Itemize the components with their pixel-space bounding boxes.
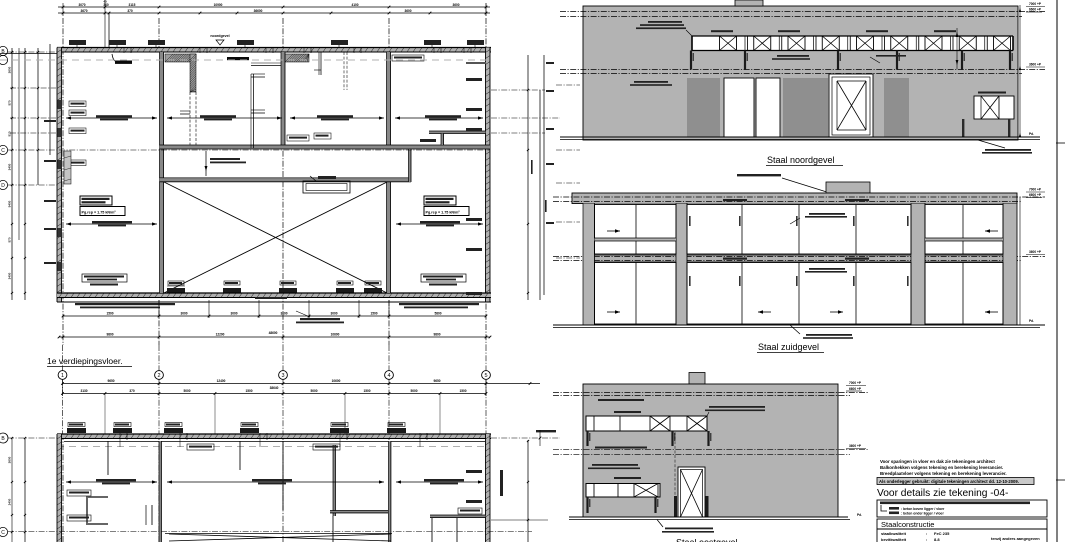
svg-text:FeC 235: FeC 235 bbox=[934, 531, 950, 536]
svg-text:3000: 3000 bbox=[280, 312, 287, 316]
svg-text:10600: 10600 bbox=[331, 333, 340, 337]
svg-text:1: 1 bbox=[61, 373, 64, 379]
svg-text:1500: 1500 bbox=[245, 389, 252, 393]
svg-text:Breedplaatvloer volgens tekeni: Breedplaatvloer volgens tekening en bere… bbox=[880, 471, 1007, 476]
svg-text:5800: 5800 bbox=[434, 312, 441, 316]
svg-text:3130: 3130 bbox=[80, 389, 87, 393]
svg-text:3400: 3400 bbox=[8, 272, 12, 279]
svg-text:3070: 3070 bbox=[78, 3, 85, 7]
svg-text:6600 +P: 6600 +P bbox=[1029, 8, 1042, 12]
svg-text:Pg.rep = 1.75 kN/m²: Pg.rep = 1.75 kN/m² bbox=[426, 210, 461, 214]
svg-text:7000 +P: 7000 +P bbox=[849, 381, 862, 385]
svg-text:: beton onder ligger / vloer: : beton onder ligger / vloer bbox=[901, 512, 944, 516]
svg-text:3000: 3000 bbox=[330, 312, 337, 316]
svg-text:bevitkwaliteit: bevitkwaliteit bbox=[881, 537, 907, 542]
svg-text:Pd.: Pd. bbox=[857, 513, 862, 517]
svg-text:510: 510 bbox=[8, 131, 12, 136]
svg-text:9800: 9800 bbox=[433, 333, 440, 337]
svg-text:Staal zuidgevel: Staal zuidgevel bbox=[758, 342, 819, 352]
svg-text:3670: 3670 bbox=[80, 9, 87, 13]
svg-text:9800: 9800 bbox=[106, 333, 113, 337]
svg-text:1500: 1500 bbox=[459, 389, 466, 393]
svg-text:3600 +P: 3600 +P bbox=[1029, 63, 1042, 67]
svg-text:8.8: 8.8 bbox=[934, 537, 940, 542]
svg-text:570: 570 bbox=[8, 100, 12, 105]
svg-text:360: 360 bbox=[103, 3, 109, 7]
svg-text:10900: 10900 bbox=[214, 3, 223, 7]
svg-text:3115: 3115 bbox=[129, 3, 136, 7]
svg-text:6600 +P: 6600 +P bbox=[1029, 193, 1042, 197]
svg-text:Pg.rep = 1.75 kN/m²: Pg.rep = 1.75 kN/m² bbox=[82, 210, 117, 214]
svg-text:noordgevel: noordgevel bbox=[210, 34, 229, 38]
svg-text:38640: 38640 bbox=[270, 386, 279, 390]
svg-text:Staal noordgevel: Staal noordgevel bbox=[767, 155, 835, 165]
svg-text:5000: 5000 bbox=[183, 389, 190, 393]
svg-text:7000 +P: 7000 +P bbox=[1029, 188, 1042, 192]
svg-text:1500: 1500 bbox=[106, 312, 113, 316]
svg-text:: beton boven ligger / vloer: : beton boven ligger / vloer bbox=[901, 507, 945, 511]
svg-text:Staalconstructie: Staalconstructie bbox=[881, 520, 934, 529]
svg-text:Voor sparingen in vloer en dak: Voor sparingen in vloer en dak zie teken… bbox=[880, 459, 995, 464]
svg-text:1e verdiepingsvloer.: 1e verdiepingsvloer. bbox=[47, 356, 123, 366]
svg-text:2: 2 bbox=[157, 373, 160, 379]
svg-text:5: 5 bbox=[484, 373, 487, 379]
svg-text:36600: 36600 bbox=[254, 9, 263, 13]
svg-text:4: 4 bbox=[387, 373, 390, 379]
svg-text:3600 +P: 3600 +P bbox=[849, 444, 862, 448]
svg-text:3600: 3600 bbox=[404, 9, 411, 13]
svg-text:5400: 5400 bbox=[8, 200, 12, 207]
svg-text:Staal oostgevel: Staal oostgevel bbox=[676, 538, 738, 542]
svg-text:10600: 10600 bbox=[332, 379, 341, 383]
svg-text:Pd.: Pd. bbox=[1029, 132, 1034, 136]
svg-text:9650: 9650 bbox=[433, 379, 440, 383]
svg-text:3: 3 bbox=[281, 373, 284, 379]
svg-text:48600: 48600 bbox=[269, 331, 278, 335]
svg-text:Pd.: Pd. bbox=[1029, 319, 1034, 323]
svg-text:3600: 3600 bbox=[452, 3, 459, 7]
svg-text:1500: 1500 bbox=[370, 312, 377, 316]
svg-text:370: 370 bbox=[129, 389, 135, 393]
svg-text::: : bbox=[926, 531, 927, 536]
svg-text:3600: 3600 bbox=[8, 456, 12, 463]
svg-text:Voor details zie tekening -04-: Voor details zie tekening -04- bbox=[877, 488, 1008, 499]
svg-text:3000: 3000 bbox=[230, 312, 237, 316]
svg-text:370: 370 bbox=[127, 9, 133, 13]
svg-text:5000: 5000 bbox=[410, 389, 417, 393]
svg-text:Als onderlegger gebruikt: digi: Als onderlegger gebruikt: digitale teken… bbox=[879, 479, 1019, 484]
svg-text:3600 +P: 3600 +P bbox=[1029, 250, 1042, 254]
svg-text:D: D bbox=[1, 183, 5, 189]
svg-text:1500: 1500 bbox=[363, 389, 370, 393]
svg-text:staalkwaliteit: staalkwaliteit bbox=[881, 531, 907, 536]
svg-text:5000: 5000 bbox=[310, 389, 317, 393]
svg-text:Balkonhekken volgens tekening: Balkonhekken volgens tekening en bereken… bbox=[880, 465, 1003, 470]
svg-text:7000 +P: 7000 +P bbox=[1029, 2, 1042, 6]
svg-text:3400: 3400 bbox=[8, 163, 12, 170]
svg-text:12400: 12400 bbox=[217, 379, 226, 383]
svg-text:12200: 12200 bbox=[216, 333, 225, 337]
svg-text::: : bbox=[926, 537, 927, 542]
svg-text:3600: 3600 bbox=[8, 66, 12, 73]
svg-text:4100: 4100 bbox=[351, 3, 358, 7]
svg-text:C: C bbox=[1, 530, 5, 536]
svg-text:570: 570 bbox=[8, 237, 12, 242]
svg-text:2400: 2400 bbox=[8, 498, 12, 505]
svg-text:40: 40 bbox=[103, 0, 107, 4]
svg-text:tenzij anders aangegeven: tenzij anders aangegeven bbox=[991, 536, 1040, 541]
svg-text:3000: 3000 bbox=[180, 312, 187, 316]
svg-text:6600 +P: 6600 +P bbox=[849, 387, 862, 391]
svg-text:C: C bbox=[1, 148, 5, 154]
svg-text:9650: 9650 bbox=[107, 379, 114, 383]
